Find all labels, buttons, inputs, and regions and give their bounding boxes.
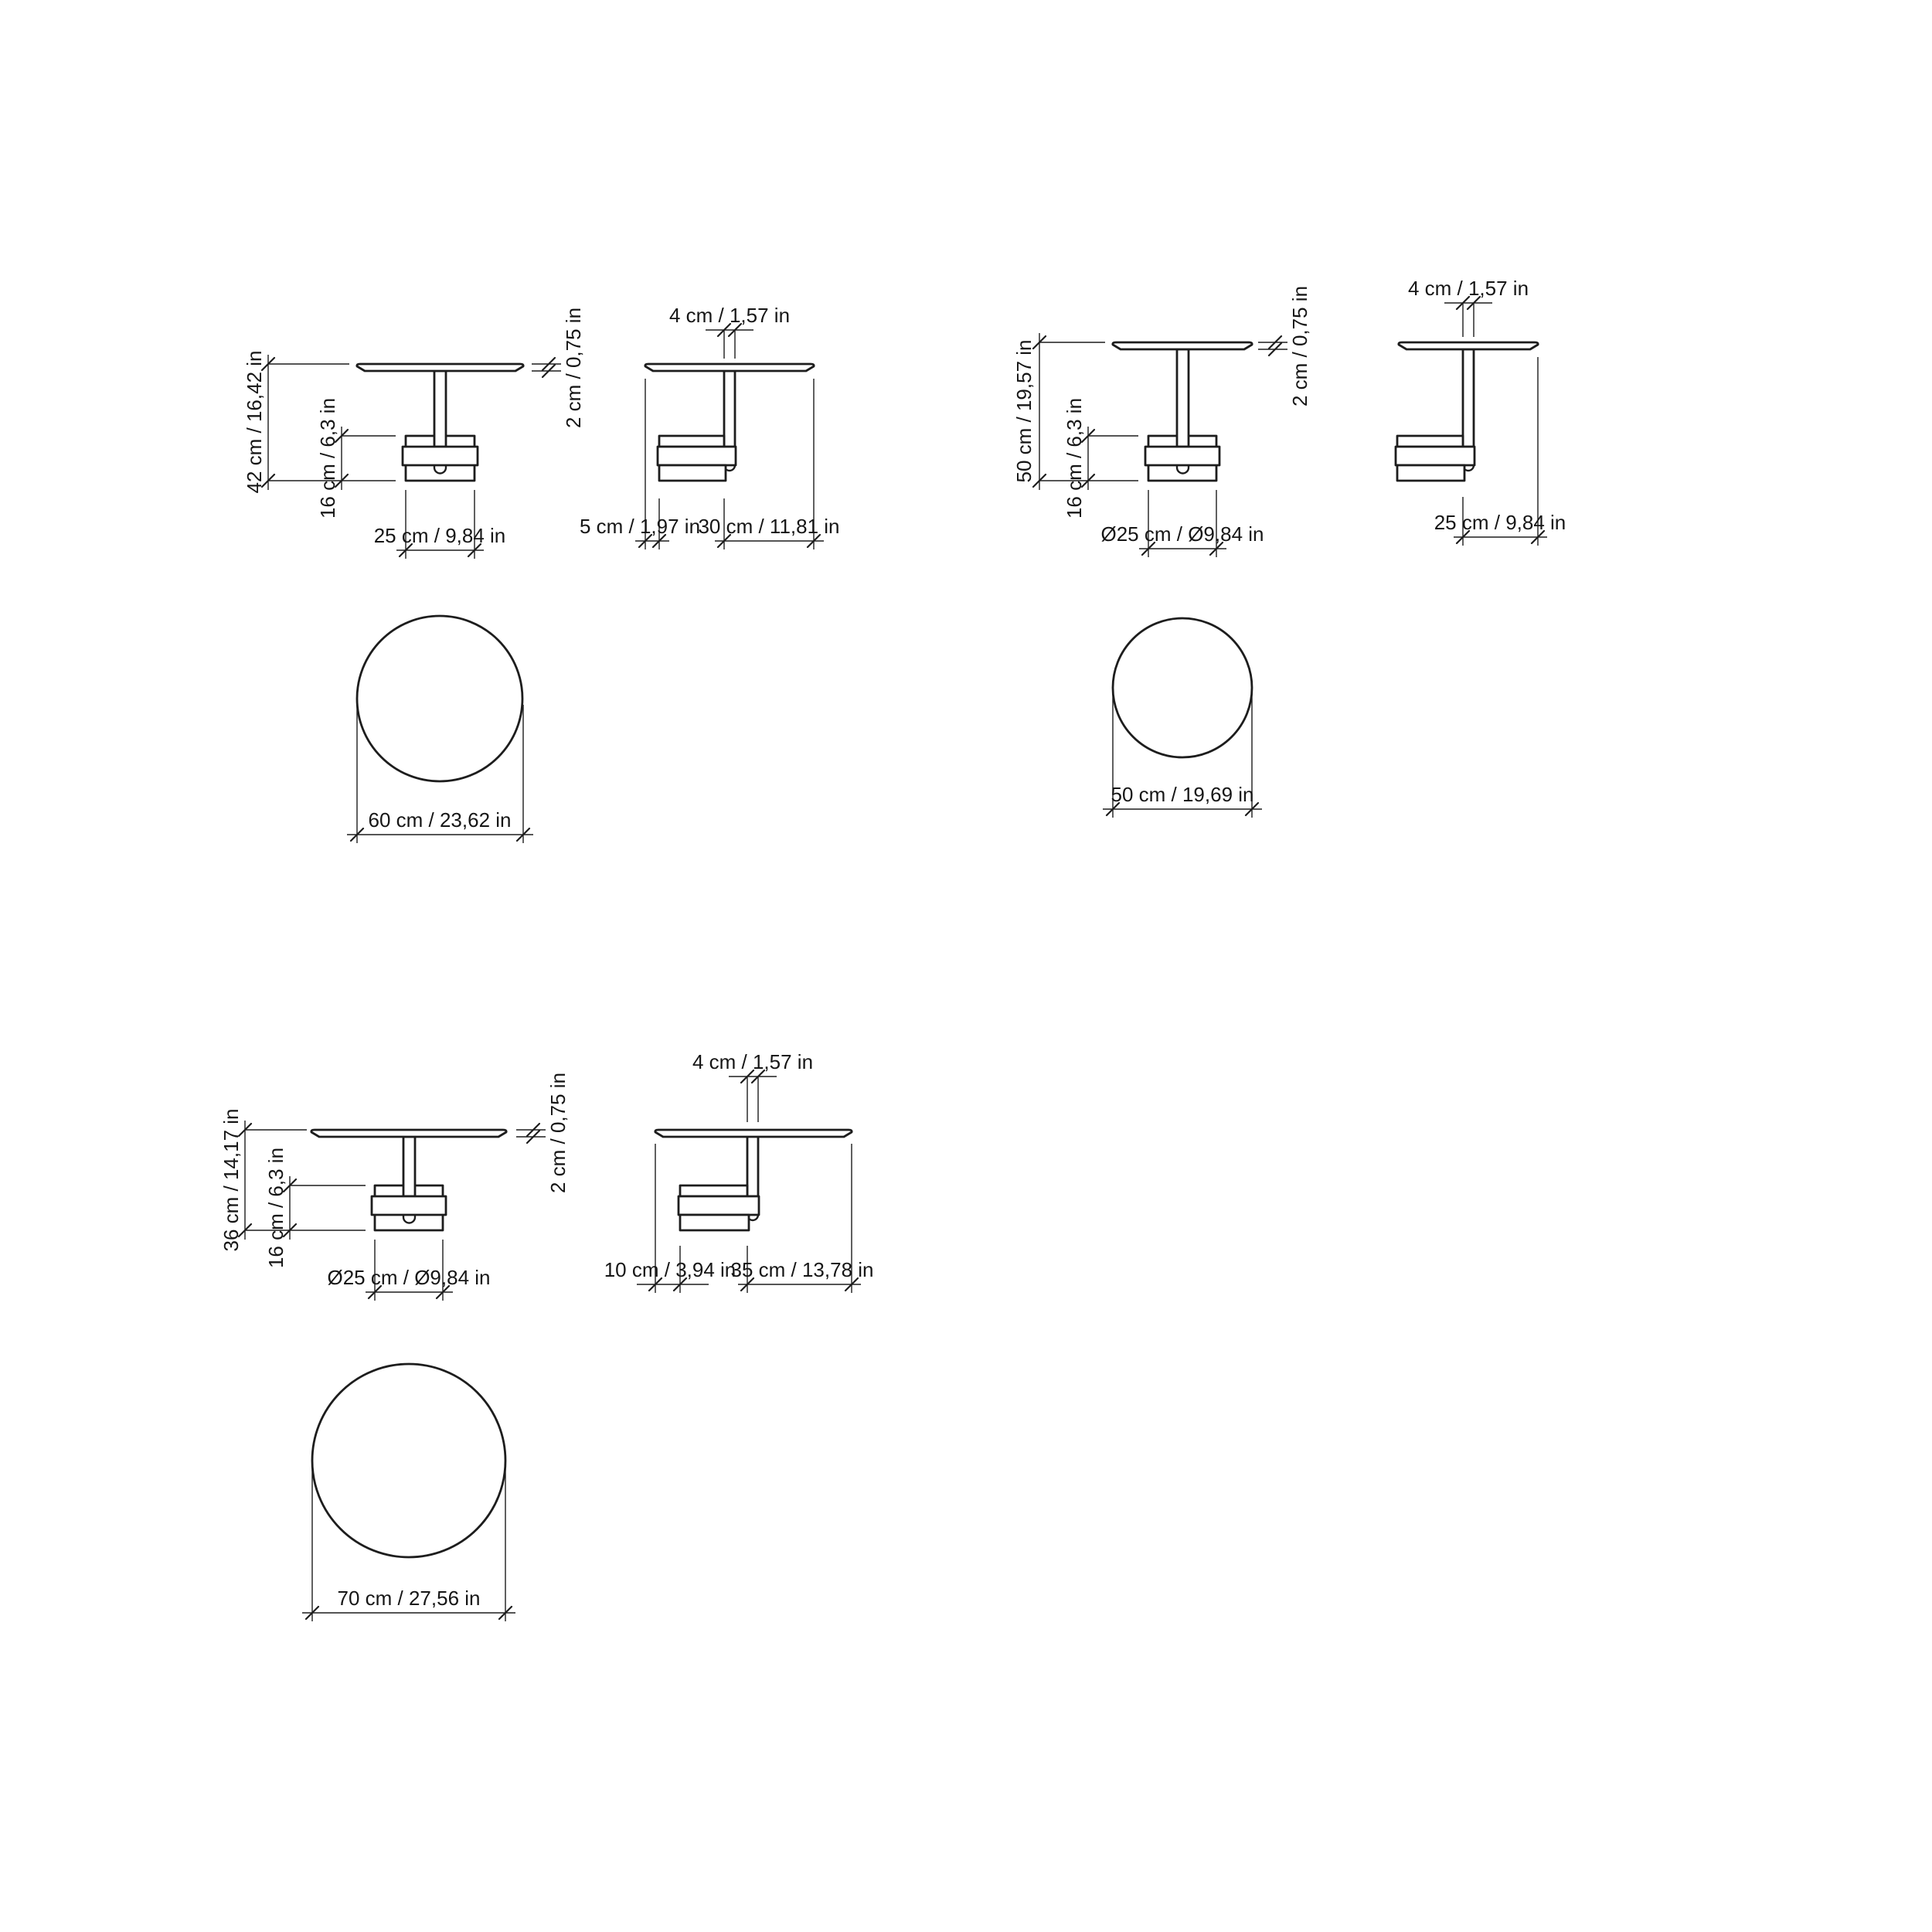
dim-ticks [1269,336,1281,355]
dim-label-base-height: 16 cm / 6,3 in [316,398,339,519]
dim-label-thickness: 2 cm / 0,75 in [1288,286,1311,406]
stem [724,371,735,447]
dim-base-height: 16 cm / 6,3 in [316,398,396,519]
base-top-band [659,436,724,447]
dim-diameter: 60 cm / 23,62 in [347,705,533,843]
dim-base-height: 16 cm / 6,3 in [264,1148,366,1268]
base-middle-band [1396,447,1475,465]
tabletop-plan-circle [357,616,522,781]
dim-ticks [543,358,555,377]
technical-drawing-sheet: 42 cm / 16,42 in 16 cm / 6,3 in 25 cm / … [0,0,1932,1932]
dim-lines [1039,333,1138,490]
stem [403,1137,415,1196]
table-70-group: 36 cm / 14,17 in 16 cm / 6,3 in Ø25 cm /… [219,1050,874,1621]
table-60-side-view: 4 cm / 1,57 in 5 cm / 1,97 in 30 cm / 11… [580,304,840,549]
dim-label-height: 36 cm / 14,17 in [219,1109,243,1252]
base-top-band [680,1185,747,1196]
dim-label-left-offset: 5 cm / 1,97 in [580,515,700,538]
dim-label-right-offset: 35 cm / 13,78 in [731,1258,874,1281]
dim-label-base-height: 16 cm / 6,3 in [1063,398,1086,519]
dim-label-right-offset: 25 cm / 9,84 in [1434,511,1566,534]
dim-label-left-offset: 10 cm / 3,94 in [604,1258,736,1281]
stem [747,1136,758,1196]
base-bottom-band [1397,465,1464,481]
base-middle-band [372,1196,446,1215]
base-bottom-band [680,1215,749,1230]
dim-stem-width: 4 cm / 1,57 in [669,304,790,359]
dim-stem-width: 4 cm / 1,57 in [692,1050,813,1122]
tabletop-profile [311,1130,506,1137]
stem [1463,349,1474,447]
table-60-top-view: 60 cm / 23,62 in [347,616,533,843]
table-70-side-view: 4 cm / 1,57 in 10 cm / 3,94 in 35 cm / 1… [604,1050,874,1293]
base-middle-band [658,447,736,465]
dim-label-diameter: 50 cm / 19,69 in [1111,783,1254,806]
dim-diameter: 50 cm / 19,69 in [1103,694,1262,818]
dim-diameter: 70 cm / 27,56 in [302,1467,515,1621]
dim-label-diameter: 60 cm / 23,62 in [369,808,512,832]
dim-base-height: 16 cm / 6,3 in [1063,398,1138,519]
dim-label-base-width: Ø25 cm / Ø9,84 in [1101,522,1264,546]
dim-base-width: Ø25 cm / Ø9,84 in [328,1240,491,1301]
base-middle-band [403,447,478,465]
dim-lines [729,1077,777,1122]
base-middle-band [1145,447,1219,465]
base-top-band [1397,436,1463,447]
stem [1177,349,1189,447]
tabletop-profile [1113,342,1252,349]
tabletop-profile [655,1130,852,1137]
dim-ticks [527,1124,539,1143]
dim-label-stem-width: 4 cm / 1,57 in [1408,277,1529,300]
stem [434,371,446,447]
dim-top-thickness: 2 cm / 0,75 in [1258,286,1311,406]
dim-top-thickness: 2 cm / 0,75 in [516,1073,570,1193]
table-50-group: 50 cm / 19,57 in 16 cm / 6,3 in Ø25 cm /… [1012,277,1566,818]
dim-label-stem-width: 4 cm / 1,57 in [692,1050,813,1073]
dim-base-width: Ø25 cm / Ø9,84 in [1101,490,1264,557]
dim-label-height: 42 cm / 16,42 in [243,351,266,494]
dim-label-thickness: 2 cm / 0,75 in [546,1073,570,1193]
table-70-top-view: 70 cm / 27,56 in [302,1364,515,1621]
dim-label-base-width: Ø25 cm / Ø9,84 in [328,1266,491,1289]
base-middle-band [679,1196,759,1215]
dim-label-right-offset: 30 cm / 11,81 in [698,515,839,538]
tabletop-profile [1399,342,1538,349]
tabletop-profile [357,364,523,371]
dim-label-height: 50 cm / 19,57 in [1012,340,1036,483]
dim-label-thickness: 2 cm / 0,75 in [562,308,585,428]
dim-top-thickness: 2 cm / 0,75 in [532,308,585,428]
table-50-front-view: 50 cm / 19,57 in 16 cm / 6,3 in Ø25 cm /… [1012,286,1311,557]
dim-stem-width: 4 cm / 1,57 in [1408,277,1529,337]
tabletop-plan-circle [1113,618,1252,757]
table-50-top-view: 50 cm / 19,69 in [1103,618,1262,818]
dimension-drawing: 42 cm / 16,42 in 16 cm / 6,3 in 25 cm / … [0,0,1932,1932]
table-60-front-view: 42 cm / 16,42 in 16 cm / 6,3 in 25 cm / … [243,308,585,559]
base-bottom-band [659,465,726,481]
tabletop-profile [645,364,814,371]
table-60-group: 42 cm / 16,42 in 16 cm / 6,3 in 25 cm / … [243,304,840,843]
tabletop-plan-circle [312,1364,505,1557]
dim-lines [245,1121,366,1240]
table-70-front-view: 36 cm / 14,17 in 16 cm / 6,3 in Ø25 cm /… [219,1073,570,1301]
dim-label-base-height: 16 cm / 6,3 in [264,1148,287,1268]
dim-label-stem-width: 4 cm / 1,57 in [669,304,790,327]
dim-base-width: 25 cm / 9,84 in [374,490,506,559]
dim-label-diameter: 70 cm / 27,56 in [338,1587,481,1610]
dim-label-base-width: 25 cm / 9,84 in [374,524,506,547]
table-50-side-view: 4 cm / 1,57 in 25 cm / 9,84 in [1396,277,1566,546]
